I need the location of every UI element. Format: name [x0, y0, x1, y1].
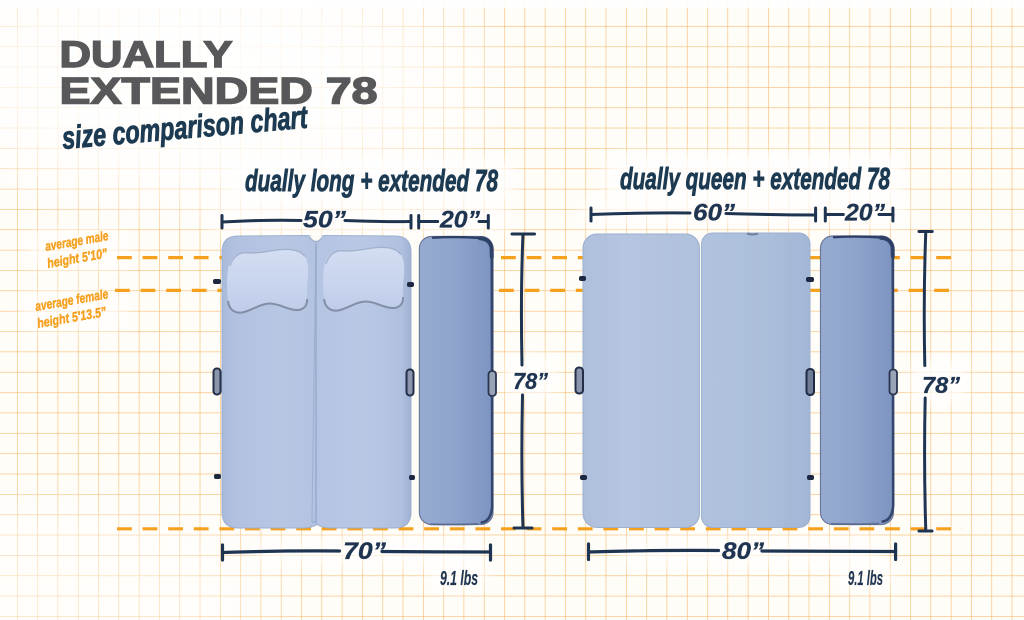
svg-text:60”: 60” [693, 200, 735, 227]
svg-text:9.1 lbs: 9.1 lbs [848, 568, 883, 590]
svg-text:70”: 70” [343, 538, 386, 565]
svg-text:dually long + extended 78: dually long + extended 78 [245, 163, 499, 198]
svg-text:dually queen + extended 78: dually queen + extended 78 [620, 161, 891, 196]
svg-text:DUALLY: DUALLY [60, 34, 233, 75]
svg-text:78”: 78” [922, 372, 961, 398]
svg-text:78”: 78” [513, 368, 548, 394]
svg-text:80”: 80” [722, 538, 764, 565]
svg-text:50”: 50” [303, 207, 346, 234]
svg-text:20”: 20” [439, 207, 480, 234]
svg-text:9.1 lbs: 9.1 lbs [440, 568, 478, 590]
svg-text:20”: 20” [844, 200, 885, 227]
